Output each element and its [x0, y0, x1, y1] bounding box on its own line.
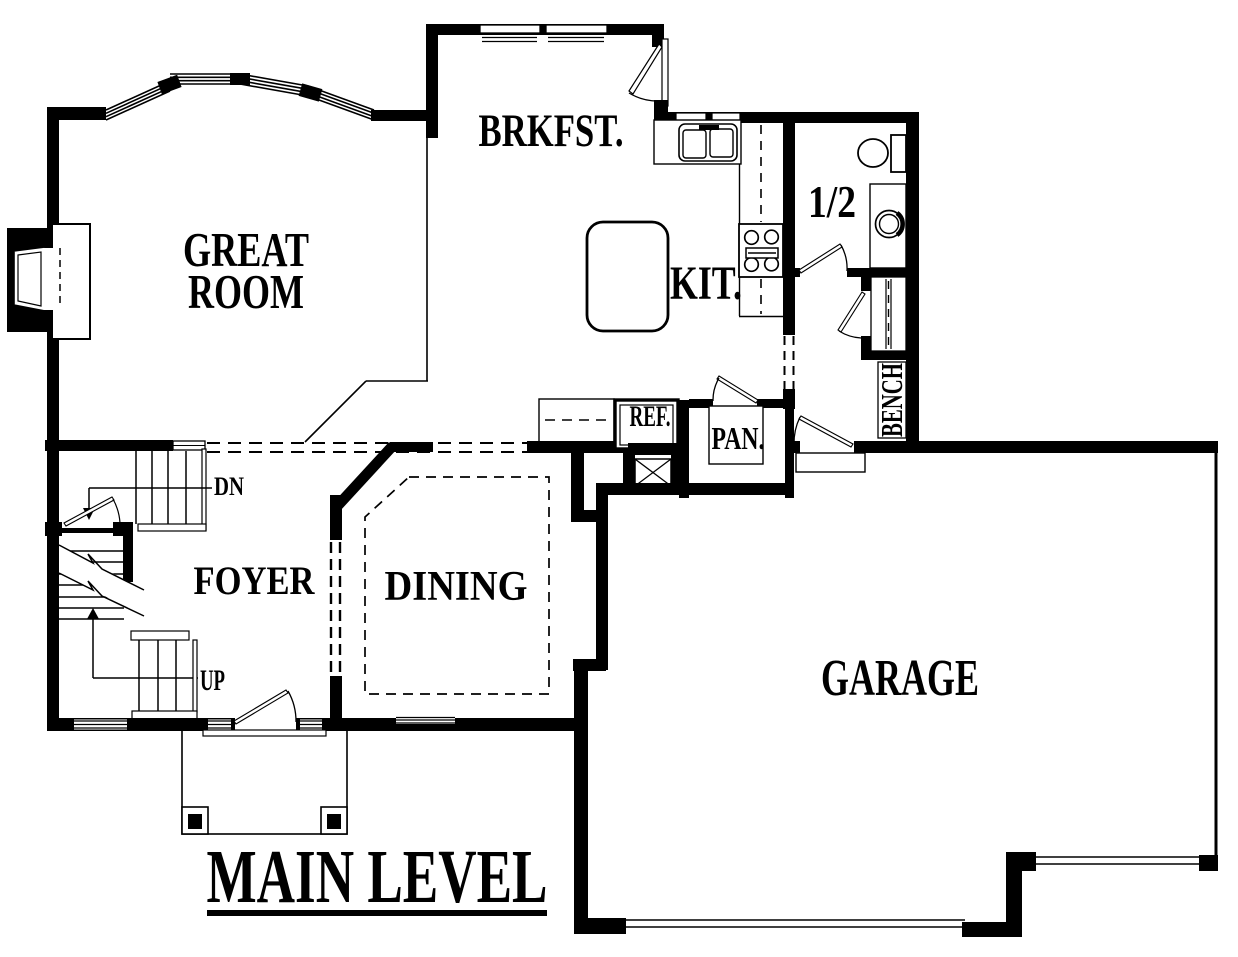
svg-text:MAIN LEVEL: MAIN LEVEL [207, 835, 548, 919]
svg-text:BENCH: BENCH [874, 363, 909, 437]
svg-text:DN: DN [214, 472, 244, 501]
svg-text:DINING: DINING [385, 564, 528, 610]
svg-text:1/2: 1/2 [808, 177, 856, 227]
svg-text:REF.: REF. [630, 400, 671, 433]
svg-text:ROOM: ROOM [188, 264, 304, 319]
svg-text:KIT.: KIT. [670, 257, 742, 310]
svg-text:PAN.: PAN. [712, 420, 765, 456]
svg-text:FOYER: FOYER [194, 558, 316, 603]
svg-text:GARAGE: GARAGE [821, 650, 979, 707]
svg-text:UP: UP [200, 664, 225, 697]
svg-text:BRKFST.: BRKFST. [479, 105, 624, 157]
